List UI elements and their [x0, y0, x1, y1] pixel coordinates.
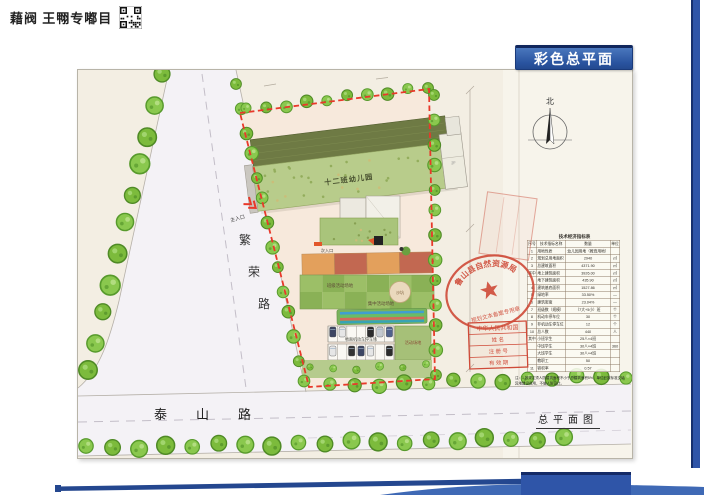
table-row: 5绿地率33.50%—	[527, 291, 620, 298]
central-activity-label: 集中活动场地	[368, 300, 395, 307]
table-cell	[610, 335, 619, 342]
table-cell: 小班学生	[537, 335, 566, 342]
tree-icon	[428, 253, 441, 266]
table-cell: 2940	[566, 255, 611, 262]
tree-icon	[530, 433, 546, 449]
table-cell: 班级数（规模）	[537, 306, 566, 313]
table-cell: 人	[610, 328, 619, 335]
table-cell: 10	[527, 328, 536, 335]
tree-icon	[95, 304, 111, 320]
page-title-text: 彩色总平面	[534, 49, 614, 69]
tree-icon	[231, 79, 242, 90]
table-cell: 4371.90	[566, 262, 611, 269]
table-cell: ㎡	[610, 277, 619, 284]
tree-icon	[397, 436, 411, 450]
table-cell: 25人×4班	[566, 335, 611, 342]
table-cell: 4	[527, 284, 536, 291]
tree-icon	[348, 379, 361, 392]
table-header: 序号	[527, 240, 536, 247]
activity-field-label: 活动场地	[405, 339, 423, 346]
table-row: 地下建筑面积435.90㎡	[527, 277, 620, 284]
car-icon	[386, 327, 392, 337]
figure-icon	[400, 247, 404, 251]
table-row: 其中地上建筑面积3926.00㎡	[527, 270, 620, 277]
tree-icon	[185, 440, 199, 454]
site-plan-drawing: 班级活动场地 集中活动场地 沙坑 地面机动车停车场 活动场	[77, 69, 633, 459]
table-row: 教职工50	[527, 357, 620, 364]
road-name-char: 荣	[248, 265, 260, 279]
tree-icon	[423, 432, 439, 448]
tree-icon	[430, 275, 441, 286]
tree-icon	[240, 127, 253, 140]
table-row: 大班学生30人×4班	[527, 350, 620, 357]
tree-icon	[495, 375, 510, 390]
rainbow-track	[337, 308, 427, 325]
tree-icon	[154, 70, 170, 82]
tree-icon	[79, 361, 97, 379]
tree-icon	[400, 364, 406, 370]
table-cell: 容积率	[537, 365, 566, 372]
table-cell	[527, 277, 536, 284]
tree-icon	[245, 147, 258, 160]
table-cell: —	[610, 291, 619, 298]
tree-icon	[343, 432, 360, 449]
table-cell: 23.04%	[566, 299, 611, 306]
table-cell: 440	[566, 328, 611, 335]
table-cell: 0.57	[566, 365, 611, 372]
indicator-table: 技术经济指标表序号技术指标名称数量单位1用地性质幼儿园用地（教育用地）2规划总用…	[527, 233, 622, 372]
table-cell: 绿地率	[537, 291, 566, 298]
watermark: 藉阀 王翈专嘟目	[10, 6, 142, 29]
tree-icon	[430, 299, 442, 311]
watermark-text: 藉阀 王翈专嘟目	[10, 8, 112, 27]
table-row: 11容积率0.57	[527, 365, 620, 372]
tree-icon	[361, 89, 373, 101]
tree-icon	[266, 241, 279, 254]
table-cell: 规划总用地面积	[537, 255, 566, 262]
table-header: 数量	[566, 240, 611, 247]
table-cell: 其中	[527, 270, 536, 277]
table-cell: 地上建筑面积	[537, 270, 566, 277]
table-cell	[610, 350, 619, 357]
table-cell: 个	[610, 313, 619, 320]
table-cell: 3	[527, 262, 536, 269]
table-cell: 5	[527, 291, 536, 298]
table-cell: —	[610, 299, 619, 306]
table-cell: 12	[566, 321, 611, 328]
table-cell: 中班学生	[537, 343, 566, 350]
table-cell: 幼儿园用地（教育用地）	[566, 248, 611, 255]
plan-note: 注：1 按规定须人防建筑面积不小于总建筑面积5%，单位已按标准交纳异地建设费用，…	[515, 376, 626, 387]
table-row: 4建筑基底面积1527.86㎡	[527, 284, 620, 291]
tree-icon	[261, 102, 272, 113]
class-activity-label: 班级活动场地	[327, 282, 354, 289]
table-cell: 30	[566, 313, 611, 320]
tree-icon	[330, 365, 337, 372]
table-cell: 建筑基底面积	[537, 284, 566, 291]
tree-icon	[369, 433, 387, 451]
table-cell: 8	[527, 313, 536, 320]
tree-icon	[376, 362, 384, 370]
tree-icon	[324, 378, 336, 390]
table-cell: 30人×4班	[566, 350, 611, 357]
road-name-taishan: 泰山路	[154, 407, 280, 422]
footer-decoration	[0, 455, 704, 495]
table-cell	[527, 357, 536, 364]
table-cell: （7大+5小）班	[566, 306, 611, 313]
tree-icon	[429, 343, 442, 356]
table-cell: 个	[610, 321, 619, 328]
tree-icon	[447, 373, 460, 386]
car-icon	[339, 327, 345, 337]
secondary-entrance-label: 次入口	[321, 247, 334, 254]
road-name-char: 路	[258, 296, 270, 311]
table-cell: 总人数	[537, 328, 566, 335]
tree-icon	[307, 364, 313, 370]
tree-icon	[422, 360, 429, 367]
table-row: 8机动车停车位30个	[527, 313, 620, 320]
tree-icon	[263, 437, 281, 455]
table-cell	[527, 350, 536, 357]
table-cell	[610, 357, 619, 364]
tree-icon	[353, 366, 361, 374]
table-cell: 地下建筑面积	[537, 277, 566, 284]
tree-icon	[277, 286, 289, 298]
tree-icon	[237, 436, 254, 453]
tree-icon	[291, 435, 305, 449]
table-row: 6建筑密度23.04%—	[527, 299, 620, 306]
table-row: 10总人数440人	[527, 328, 620, 335]
car-icon	[348, 346, 354, 356]
tree-icon	[471, 374, 485, 388]
tree-icon	[157, 436, 175, 454]
table-cell: 个	[610, 306, 619, 313]
qr-code-icon	[119, 6, 142, 29]
table-cell: 30人×4班	[566, 343, 611, 350]
table-cell	[610, 365, 619, 372]
sand-pit-label: 沙坑	[396, 289, 404, 295]
tree-icon	[79, 439, 93, 453]
table-row: 其中小班学生25人×4班	[527, 335, 620, 342]
table-cell: ㎡	[610, 255, 619, 262]
table-row: 9非机动车停车位12个	[527, 321, 620, 328]
north-label: 北	[546, 97, 554, 106]
car-icon	[386, 346, 392, 356]
table-cell: 其中	[527, 335, 536, 342]
table-cell: 机动车停车位	[537, 313, 566, 320]
tree-icon	[146, 97, 163, 114]
table-cell: 大班学生	[537, 350, 566, 357]
table-cell: 教职工	[537, 357, 566, 364]
parking-label: 地面机动车停车场	[345, 336, 377, 342]
table-cell: 1527.86	[566, 284, 611, 291]
table-row: 3总建筑面积4371.90㎡	[527, 262, 620, 269]
table-cell: 11	[527, 365, 536, 372]
tree-icon	[504, 432, 518, 446]
tree-icon	[105, 440, 121, 456]
table-cell	[527, 343, 536, 350]
building-entry	[374, 236, 383, 245]
green-strip	[302, 360, 432, 378]
tree-icon	[100, 275, 120, 295]
tree-icon	[317, 436, 333, 452]
tree-icon	[396, 375, 411, 390]
tree-icon	[87, 335, 104, 352]
drawing-title: 总平面图	[536, 411, 600, 429]
table-cell: 总建筑面积	[537, 262, 566, 269]
table-cell: 3926.00	[566, 270, 611, 277]
tree-icon	[108, 244, 126, 262]
tree-icon	[211, 435, 227, 451]
car-icon	[330, 346, 336, 356]
table-cell: 1	[527, 248, 536, 255]
table-header: 技术指标名称	[537, 240, 566, 247]
table-row: 1用地性质幼儿园用地（教育用地）	[527, 248, 620, 255]
table-cell: ㎡	[610, 284, 619, 291]
table-cell: 9	[527, 321, 536, 328]
slide: 藉阀 王翈专嘟目 彩色总平面	[0, 0, 704, 495]
tree-icon	[116, 213, 133, 230]
table-cell: 2	[527, 255, 536, 262]
page-title: 彩色总平面	[515, 45, 633, 70]
table-cell: 435.90	[566, 277, 611, 284]
table-cell: 用地性质	[537, 248, 566, 255]
tree-icon	[429, 319, 442, 332]
tree-icon	[130, 154, 150, 174]
tree-icon	[287, 330, 300, 343]
play-squares	[302, 252, 432, 275]
table-cell: 7	[527, 306, 536, 313]
tree-icon	[124, 187, 140, 203]
table-cell: 建筑密度	[537, 299, 566, 306]
car-icon	[367, 327, 373, 337]
table-cell: ㎡	[610, 270, 619, 277]
tree-icon	[300, 95, 313, 108]
table-cell: 33.50%	[566, 291, 611, 298]
table-row: 2规划总用地面积2940㎡	[527, 255, 620, 262]
table-header: 单位	[610, 240, 619, 247]
car-icon	[358, 346, 364, 356]
tree-icon	[138, 128, 156, 146]
tree-icon	[556, 429, 573, 446]
tree-icon	[449, 433, 466, 450]
table-cell	[610, 248, 619, 255]
road-name-char: 繁	[239, 232, 251, 247]
table-cell: 6	[527, 299, 536, 306]
tree-icon	[429, 90, 440, 101]
right-accent-bar	[691, 0, 700, 468]
car-icon	[367, 346, 373, 356]
table-cell: ㎡	[610, 262, 619, 269]
secondary-entrance-marker	[314, 242, 322, 246]
table-cell: 50	[566, 357, 611, 364]
tree-icon	[429, 229, 442, 242]
table-row: 7班级数（规模）（7大+5小）班个	[527, 306, 620, 313]
car-icon	[377, 327, 383, 337]
tree-icon	[475, 429, 493, 447]
table-cell: 360	[610, 343, 619, 350]
car-icon	[330, 327, 336, 337]
table-title: 技术经济指标表	[527, 233, 622, 240]
table-row: 中班学生30人×4班360	[527, 343, 620, 350]
table-cell: 非机动车停车位	[537, 321, 566, 328]
